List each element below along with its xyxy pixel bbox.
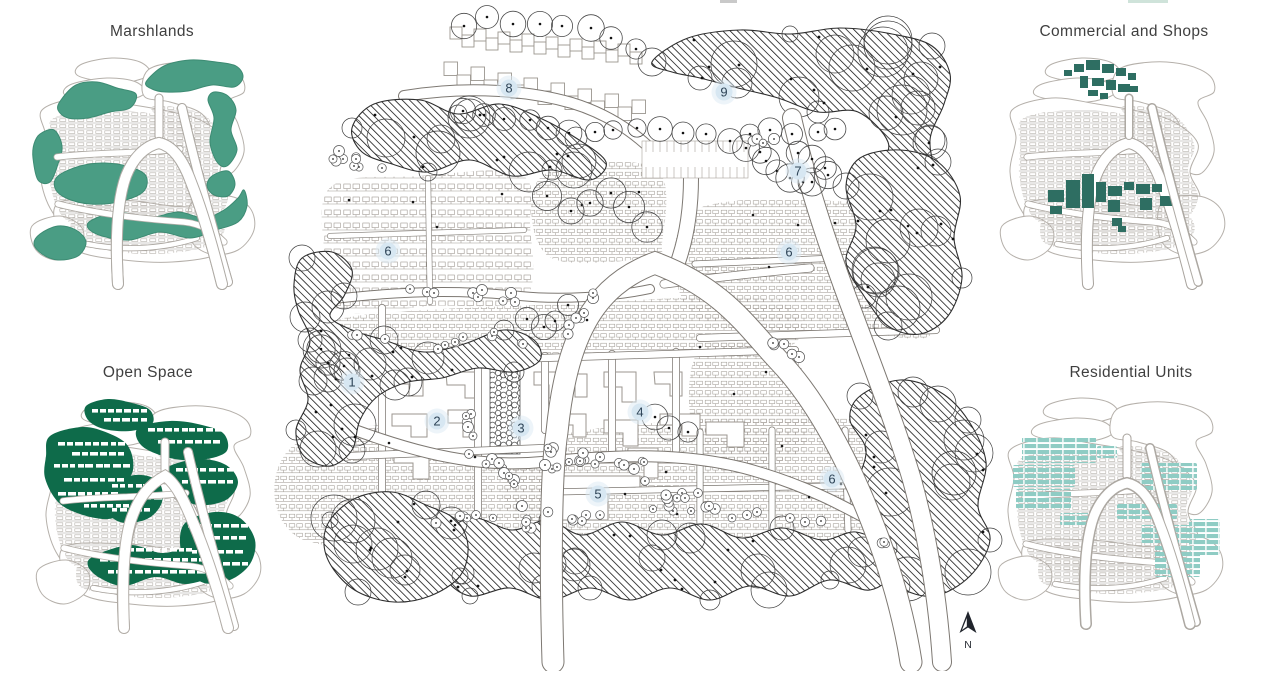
svg-text:5: 5 — [594, 487, 601, 502]
svg-text:Marshlands: Marshlands — [110, 23, 194, 40]
svg-text:6: 6 — [828, 472, 835, 487]
svg-text:3: 3 — [517, 421, 524, 436]
svg-text:4: 4 — [636, 405, 643, 420]
svg-text:2: 2 — [433, 414, 440, 429]
svg-text:1: 1 — [348, 375, 355, 390]
svg-text:Open Space: Open Space — [103, 364, 193, 381]
svg-text:7: 7 — [794, 164, 801, 179]
svg-text:Commercial and Shops: Commercial and Shops — [1039, 23, 1208, 40]
svg-text:6: 6 — [384, 244, 391, 259]
svg-text:N: N — [964, 639, 972, 651]
svg-text:Residential Units: Residential Units — [1069, 364, 1192, 381]
svg-text:8: 8 — [505, 81, 512, 96]
svg-text:6: 6 — [785, 245, 792, 260]
svg-text:9: 9 — [720, 85, 727, 100]
